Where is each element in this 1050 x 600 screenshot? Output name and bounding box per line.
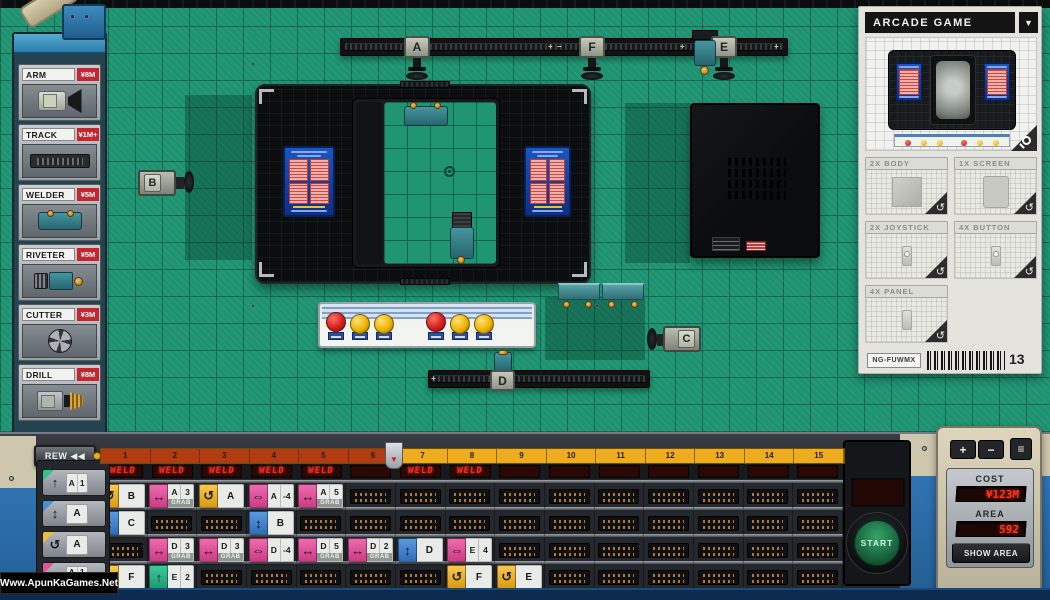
part-name-label: RIVETER bbox=[22, 248, 75, 261]
slot-2-14 bbox=[744, 510, 794, 536]
chip-target: D bbox=[218, 539, 231, 553]
socket-pins bbox=[752, 580, 783, 583]
work-lane-floor[interactable] bbox=[384, 102, 496, 264]
yellow-push-button[interactable] bbox=[474, 314, 494, 334]
game-root: + − + + A F E bbox=[0, 0, 1050, 600]
rivet bbox=[631, 301, 638, 308]
chip-target: B bbox=[268, 512, 293, 534]
empty-socket[interactable] bbox=[747, 489, 788, 504]
socket-pins bbox=[554, 547, 585, 550]
part-price-badge: ¥8M bbox=[77, 368, 99, 381]
slot-2-10 bbox=[545, 510, 595, 536]
empty-socket[interactable] bbox=[300, 570, 341, 585]
socket-pins bbox=[653, 493, 684, 496]
chip-slide-E[interactable]: ⇔E4 bbox=[447, 538, 492, 562]
arm-c-gripper bbox=[647, 328, 657, 350]
socket-pins bbox=[355, 520, 386, 523]
arm-f-gripper bbox=[580, 57, 604, 83]
chip-steps: 5 bbox=[330, 485, 342, 499]
empty-socket[interactable] bbox=[499, 489, 540, 504]
empty-socket[interactable] bbox=[648, 570, 689, 585]
slot-2-15 bbox=[793, 510, 843, 536]
zoom-out-button[interactable]: − bbox=[978, 440, 1004, 459]
socket-pins bbox=[554, 499, 585, 502]
ruler-cells: 123456789101112131415 bbox=[101, 449, 844, 463]
socket-pins bbox=[554, 493, 585, 496]
empty-socket[interactable] bbox=[400, 489, 441, 504]
welder-tip bbox=[434, 102, 441, 109]
weld-indicator-12 bbox=[648, 465, 689, 478]
chip-umove-E[interactable]: ↑E2 bbox=[149, 565, 194, 589]
umove-icon: ↑ bbox=[149, 565, 168, 589]
slot-1-7 bbox=[396, 483, 446, 509]
slot-1-8 bbox=[446, 483, 496, 509]
part-slot-label: 2X JOYSTICK bbox=[865, 221, 948, 234]
socket-pins bbox=[355, 499, 386, 502]
body-part-icon bbox=[892, 177, 922, 207]
socket-pins bbox=[554, 580, 585, 583]
track-mark: + − bbox=[548, 42, 563, 51]
chip-target-steps: A5 bbox=[317, 485, 342, 499]
arm-b-gripper bbox=[184, 171, 194, 193]
empty-socket[interactable] bbox=[598, 570, 639, 585]
empty-socket[interactable] bbox=[400, 570, 441, 585]
console-trim bbox=[0, 436, 36, 488]
socket-pins bbox=[752, 520, 783, 523]
panel-part-piece[interactable] bbox=[558, 283, 600, 300]
show-area-button[interactable]: SHOW AREA bbox=[952, 543, 1030, 563]
empty-socket[interactable] bbox=[698, 516, 739, 531]
weld-indicator-row: WELDWELDWELDWELDWELDWELDWELD bbox=[98, 463, 846, 479]
empty-socket[interactable] bbox=[350, 570, 391, 585]
socket-pins bbox=[653, 520, 684, 523]
slot-2-3 bbox=[197, 510, 247, 536]
socket-pins bbox=[802, 520, 833, 523]
node-c-machine[interactable]: C bbox=[663, 326, 701, 352]
slot-1-3: ↺A bbox=[197, 483, 247, 509]
chip-label-plate: A bbox=[66, 504, 88, 524]
empty-socket[interactable] bbox=[747, 570, 788, 585]
chip-label-plate: D2GRAB bbox=[367, 538, 393, 562]
empty-socket[interactable] bbox=[648, 543, 689, 558]
node-f-tag[interactable]: F bbox=[579, 36, 605, 58]
socket-pins bbox=[703, 499, 734, 502]
device-preview bbox=[22, 144, 97, 178]
chip-slide-D[interactable]: ⇔D-4 bbox=[249, 538, 294, 562]
part-slot-label: 1X SCREEN bbox=[954, 157, 1037, 170]
socket-pins bbox=[802, 553, 833, 556]
red-push-button[interactable] bbox=[426, 312, 446, 332]
program-console: REW ◀◀ 123456789101112131415 ▼ WELDWELDW… bbox=[0, 432, 1050, 600]
socket-pins bbox=[156, 520, 187, 523]
weld-indicator-3: WELD bbox=[201, 465, 242, 478]
screen-part-icon bbox=[983, 176, 1009, 208]
empty-socket[interactable] bbox=[747, 543, 788, 558]
slot-3-10 bbox=[545, 537, 595, 563]
chip-label-plate: D3GRAB bbox=[168, 538, 194, 562]
vmove-icon: ↕ bbox=[249, 511, 268, 535]
chip-label-plate: D5GRAB bbox=[317, 538, 343, 562]
chip-target: B bbox=[119, 485, 144, 507]
part-name-label: TRACK bbox=[22, 128, 75, 141]
welder-machine[interactable] bbox=[404, 106, 448, 126]
weld-indicator-15 bbox=[797, 465, 838, 478]
arcade-cabinet-preview bbox=[888, 50, 1016, 130]
area-label: AREA bbox=[947, 509, 1033, 519]
part-slot-label: 4X BUTTON bbox=[954, 221, 1037, 234]
empty-socket[interactable] bbox=[797, 516, 838, 531]
chip-label-plate: D-4 bbox=[268, 538, 294, 562]
part-slot-label: 2X BODY bbox=[865, 157, 948, 170]
chip-move-D[interactable]: ↔D3GRAB bbox=[199, 538, 244, 562]
chip-label-plate: E4 bbox=[466, 538, 492, 562]
product-count: 13 bbox=[1009, 351, 1037, 367]
slot-3-12 bbox=[644, 537, 694, 563]
chip-label-plate: B bbox=[119, 484, 145, 508]
socket-pins bbox=[454, 520, 485, 523]
chip-steps: 5 bbox=[330, 539, 342, 553]
empty-socket[interactable] bbox=[797, 570, 838, 585]
vmove-icon: ↕ bbox=[398, 538, 417, 562]
slot-1-13 bbox=[694, 483, 744, 509]
slot-3-7: ↕D bbox=[396, 537, 446, 563]
product-title-bar[interactable]: ARCADE GAME bbox=[865, 12, 1015, 33]
palette-item-cutter[interactable]: CUTTER¥3M bbox=[18, 304, 101, 361]
part-slot-joystick-part[interactable]: 2X JOYSTICK↺ bbox=[865, 221, 948, 279]
ruler-tick-11: 11 bbox=[596, 449, 646, 463]
slot-3-13 bbox=[694, 537, 744, 563]
empty-socket[interactable] bbox=[698, 489, 739, 504]
corner-bracket bbox=[259, 89, 274, 104]
ruler-tick-8: 8 bbox=[448, 449, 498, 463]
empty-socket[interactable] bbox=[449, 489, 490, 504]
track-mark: + bbox=[680, 42, 686, 51]
instruction-row-2: ↕C↕B bbox=[98, 510, 846, 536]
joystick-part-icon bbox=[902, 246, 912, 266]
empty-socket[interactable] bbox=[598, 516, 639, 531]
weld-led-text: WELD bbox=[407, 466, 434, 476]
socket-pins bbox=[554, 520, 585, 523]
chip-target: A bbox=[67, 505, 87, 523]
rotate-icon: ↺ bbox=[447, 565, 466, 589]
chip-steps: 2 bbox=[181, 566, 193, 588]
node-a-tag[interactable]: A bbox=[404, 36, 430, 58]
socket-pins bbox=[504, 520, 535, 523]
product-dropdown-button[interactable]: ▼ bbox=[1019, 12, 1038, 33]
ruler-tick-12: 12 bbox=[646, 449, 696, 463]
node-b-tag: B bbox=[144, 174, 161, 192]
chip-steps: 4 bbox=[479, 539, 491, 561]
chip-target-steps: E4 bbox=[466, 539, 491, 561]
socket-pins bbox=[405, 580, 436, 583]
chip-target: F bbox=[466, 566, 491, 588]
socket-pins bbox=[653, 553, 684, 556]
timeline-ruler[interactable]: 123456789101112131415 ▼ bbox=[100, 448, 845, 464]
empty-socket[interactable] bbox=[549, 570, 590, 585]
socket-pins bbox=[703, 520, 734, 523]
yellow-push-button[interactable] bbox=[350, 314, 370, 334]
rotate-icon: ↺ bbox=[199, 484, 218, 508]
empty-socket[interactable] bbox=[499, 543, 540, 558]
placement-target[interactable] bbox=[444, 166, 455, 177]
empty-socket[interactable] bbox=[549, 516, 590, 531]
socket-pins bbox=[554, 574, 585, 577]
arm-a-gripper bbox=[405, 57, 429, 83]
ruler-tick-5: 5 bbox=[299, 449, 349, 463]
yellow-push-button[interactable] bbox=[374, 314, 394, 334]
chip-steps: 3 bbox=[231, 539, 243, 553]
rotate-icon: ↺ bbox=[47, 537, 63, 553]
chip-grab-label: GRAB bbox=[218, 553, 243, 561]
socket-pins bbox=[603, 580, 634, 583]
corner-bracket bbox=[572, 89, 587, 104]
slot-3-8: ⇔E4 bbox=[446, 537, 496, 563]
chip-rotate-F[interactable]: ↺F bbox=[447, 565, 492, 589]
start-button[interactable]: START bbox=[846, 512, 908, 574]
legend-rotate-button[interactable]: ↺A bbox=[42, 531, 106, 558]
track-mark: + bbox=[774, 42, 780, 51]
weld-indicator-9 bbox=[499, 465, 540, 478]
empty-socket[interactable] bbox=[549, 489, 590, 504]
empty-socket[interactable] bbox=[648, 516, 689, 531]
empty-socket[interactable] bbox=[251, 570, 292, 585]
chip-steps: 3 bbox=[181, 539, 193, 553]
chip-target: E bbox=[168, 566, 181, 588]
arm-screw bbox=[84, 14, 89, 19]
socket-pins bbox=[107, 547, 138, 550]
slot-3-4: ⇔D-4 bbox=[247, 537, 297, 563]
start-panel: START bbox=[843, 440, 911, 586]
welder-tip bbox=[410, 102, 417, 109]
empty-socket[interactable] bbox=[598, 489, 639, 504]
part-slot-button-part[interactable]: 4X BUTTON↺ bbox=[954, 221, 1037, 279]
button-label-plate bbox=[328, 332, 344, 340]
chip-vmove-D[interactable]: ↕D bbox=[398, 538, 443, 562]
empty-socket[interactable] bbox=[201, 570, 242, 585]
socket-pins bbox=[305, 574, 336, 577]
gold-ring bbox=[498, 350, 508, 355]
arm-screw bbox=[70, 14, 75, 19]
empty-socket[interactable] bbox=[598, 543, 639, 558]
empty-socket[interactable] bbox=[797, 489, 838, 504]
empty-socket[interactable] bbox=[549, 543, 590, 558]
socket-pins bbox=[405, 493, 436, 496]
panel-part-icon bbox=[902, 310, 912, 330]
part-slot-label: 4X PANEL bbox=[865, 285, 948, 298]
slot-3-2: ↔D3GRAB bbox=[148, 537, 198, 563]
empty-socket[interactable] bbox=[698, 570, 739, 585]
ruler-tick-7: 7 bbox=[398, 449, 448, 463]
chip-target: A bbox=[168, 485, 181, 499]
chip-slide-A[interactable]: ⇔A-4 bbox=[249, 484, 294, 508]
menu-button[interactable]: ≡ bbox=[1010, 438, 1032, 460]
yellow-push-button[interactable] bbox=[450, 314, 470, 334]
move-icon: ↔ bbox=[149, 538, 168, 562]
rotate-icon: ↺ bbox=[936, 265, 945, 278]
socket-pins bbox=[603, 547, 634, 550]
socket-pins bbox=[355, 493, 386, 496]
palette-item-welder[interactable]: WELDER¥5M bbox=[18, 184, 101, 241]
arm-icon bbox=[36, 89, 84, 113]
weld-led-text: WELD bbox=[308, 466, 335, 476]
empty-socket[interactable] bbox=[350, 489, 391, 504]
weld-indicator-7: WELD bbox=[400, 465, 441, 478]
chip-target: D bbox=[168, 539, 181, 553]
slot-1-9 bbox=[495, 483, 545, 509]
socket-pins bbox=[603, 574, 634, 577]
palette-item-arm[interactable]: ARM¥8M bbox=[18, 64, 101, 121]
chip-move-A[interactable]: ↔A5GRAB bbox=[298, 484, 343, 508]
ruler-tick-2: 2 bbox=[151, 449, 201, 463]
socket-pins bbox=[454, 526, 485, 529]
zoom-in-button[interactable]: + bbox=[950, 440, 976, 459]
slot-2-2 bbox=[148, 510, 198, 536]
floor-screw bbox=[251, 304, 255, 308]
socket-pins bbox=[355, 574, 386, 577]
track-icon bbox=[30, 154, 90, 168]
rivet bbox=[563, 301, 570, 308]
socket-pins bbox=[405, 574, 436, 577]
node-b-machine[interactable]: B bbox=[138, 170, 176, 196]
empty-socket[interactable] bbox=[350, 516, 391, 531]
chip-label-plate: A5GRAB bbox=[317, 484, 343, 508]
ruler-tick-10: 10 bbox=[547, 449, 597, 463]
chip-move-D[interactable]: ↔D2GRAB bbox=[348, 538, 393, 562]
socket-pins bbox=[752, 574, 783, 577]
empty-socket[interactable] bbox=[747, 516, 788, 531]
chip-grab-label: GRAB bbox=[317, 553, 342, 561]
palette-item-track[interactable]: TRACK¥1M+ bbox=[18, 124, 101, 181]
slot-4-9: ↺E bbox=[495, 564, 545, 590]
part-slot-panel-part[interactable]: 4X PANEL↺ bbox=[865, 285, 948, 343]
area-display: 592 bbox=[955, 521, 1026, 537]
chip-move-D[interactable]: ↔D3GRAB bbox=[149, 538, 194, 562]
slot-3-9 bbox=[495, 537, 545, 563]
palette-item-riveter[interactable]: RIVETER¥5M bbox=[18, 244, 101, 301]
slot-1-15 bbox=[793, 483, 843, 509]
chip-move-A[interactable]: ↔A3GRAB bbox=[149, 484, 194, 508]
chip-rotate-E[interactable]: ↺E bbox=[497, 565, 542, 589]
empty-socket[interactable] bbox=[499, 516, 540, 531]
socket-pins bbox=[603, 499, 634, 502]
part-price-badge: ¥1M+ bbox=[77, 128, 99, 141]
legend-vmove-button[interactable]: ↕A bbox=[42, 500, 106, 527]
socket-pins bbox=[752, 493, 783, 496]
socket-pins bbox=[653, 547, 684, 550]
canister-tip bbox=[457, 256, 465, 264]
watermark: Www.ApunKaGames.Net bbox=[0, 572, 118, 594]
palette-item-drill[interactable]: DRILL¥8M bbox=[18, 364, 101, 421]
conveyor-track-bottom[interactable] bbox=[428, 370, 650, 388]
node-d-machine[interactable] bbox=[494, 352, 512, 372]
part-slot-body-part[interactable]: 2X BODY↺ bbox=[865, 157, 948, 215]
chip-label-plate: D bbox=[417, 538, 443, 562]
slot-1-5: ↔A5GRAB bbox=[297, 483, 347, 509]
chip-label-plate: A bbox=[66, 535, 88, 555]
socket-pins bbox=[256, 580, 287, 583]
socket-pins bbox=[554, 526, 585, 529]
chip-grab-label: GRAB bbox=[317, 499, 342, 507]
slot-3-11 bbox=[595, 537, 645, 563]
empty-socket[interactable] bbox=[449, 516, 490, 531]
weld-indicator-10 bbox=[549, 465, 590, 478]
slot-2-7 bbox=[396, 510, 446, 536]
cutter-blade-strip bbox=[356, 102, 382, 264]
empty-socket[interactable] bbox=[151, 516, 192, 531]
cost-display: ¥123M bbox=[955, 486, 1026, 502]
empty-socket[interactable] bbox=[201, 516, 242, 531]
drill-icon bbox=[35, 390, 85, 412]
socket-pins bbox=[802, 547, 833, 550]
red-push-button[interactable] bbox=[326, 312, 346, 332]
empty-socket[interactable] bbox=[797, 543, 838, 558]
riveter-machine[interactable] bbox=[694, 40, 716, 66]
device-preview bbox=[22, 384, 97, 418]
socket-pins bbox=[703, 580, 734, 583]
legend-umove-button[interactable]: ↑A1 bbox=[42, 469, 106, 496]
slot-4-7 bbox=[396, 564, 446, 590]
node-d-tag[interactable]: D bbox=[490, 370, 515, 391]
weld-indicator-11 bbox=[599, 465, 640, 478]
weld-led-text: WELD bbox=[109, 466, 136, 476]
socket-pins bbox=[454, 493, 485, 496]
canister-machine[interactable] bbox=[450, 227, 474, 259]
barcode bbox=[927, 351, 1005, 370]
empty-socket[interactable] bbox=[698, 543, 739, 558]
chip-target-steps: D3 bbox=[168, 539, 193, 553]
chip-target: D bbox=[317, 539, 330, 553]
playhead[interactable]: ▼ bbox=[385, 442, 403, 469]
chip-target: D bbox=[417, 539, 442, 561]
slot-2-5 bbox=[297, 510, 347, 536]
panel-part-piece[interactable] bbox=[602, 283, 644, 300]
cabinet-back-panel[interactable] bbox=[690, 103, 820, 258]
weld-indicator-14 bbox=[748, 465, 789, 478]
chip-label-plate: A bbox=[218, 484, 244, 508]
socket-pins bbox=[603, 553, 634, 556]
empty-socket[interactable] bbox=[300, 516, 341, 531]
button-label-plate bbox=[428, 332, 444, 340]
chip-steps: 3 bbox=[181, 485, 193, 499]
socket-pins bbox=[802, 580, 833, 583]
chip-grab-label: GRAB bbox=[367, 553, 392, 561]
chip-target-steps: A3 bbox=[168, 485, 193, 499]
empty-socket[interactable] bbox=[400, 516, 441, 531]
slot-4-12 bbox=[644, 564, 694, 590]
slot-2-12 bbox=[644, 510, 694, 536]
chip-move-D[interactable]: ↔D5GRAB bbox=[298, 538, 343, 562]
chip-rotate-A[interactable]: ↺A bbox=[199, 484, 244, 508]
slot-4-13 bbox=[694, 564, 744, 590]
mini-blueprint bbox=[984, 63, 1010, 101]
floor-dark-patch bbox=[185, 95, 252, 260]
robot-arm-machine[interactable] bbox=[8, 0, 118, 48]
empty-socket[interactable] bbox=[648, 489, 689, 504]
slot-4-2: ↑E2 bbox=[148, 564, 198, 590]
slot-4-15 bbox=[793, 564, 843, 590]
socket-pins bbox=[305, 580, 336, 583]
move-icon: ↔ bbox=[298, 538, 317, 562]
chip-target-steps: D-4 bbox=[268, 539, 293, 561]
socket-pins bbox=[703, 526, 734, 529]
socket-pins bbox=[653, 526, 684, 529]
device-preview bbox=[22, 324, 97, 358]
chip-vmove-B[interactable]: ↕B bbox=[249, 511, 294, 535]
part-slot-screen-part[interactable]: 1X SCREEN↺ bbox=[954, 157, 1037, 215]
corner-bracket bbox=[572, 262, 587, 277]
move-icon: ↔ bbox=[199, 538, 218, 562]
slot-4-10 bbox=[545, 564, 595, 590]
